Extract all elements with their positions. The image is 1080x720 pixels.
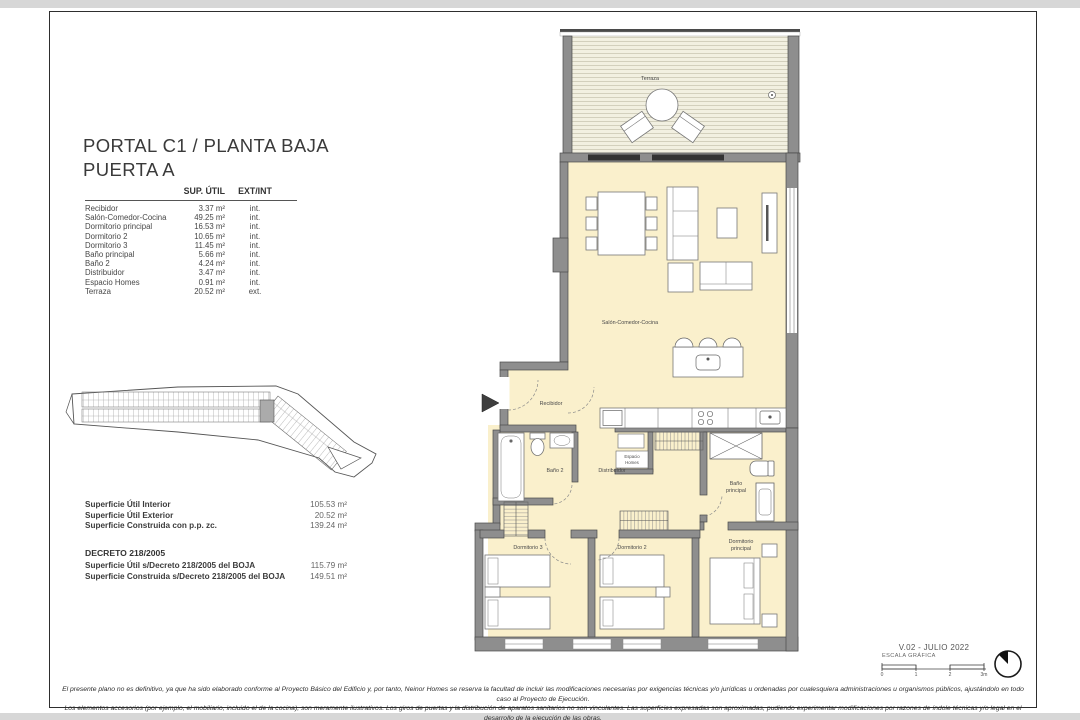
page-title: PORTAL C1 / PLANTA BAJA PUERTA A	[83, 134, 329, 182]
title-line-2: PUERTA A	[83, 158, 329, 182]
terrace-table	[646, 89, 678, 121]
nightstand	[656, 587, 670, 597]
label-banyo-ppal-2: principal	[726, 488, 746, 494]
site-units-row	[82, 409, 270, 422]
entry-arrow-icon	[482, 394, 499, 412]
label-recibidor: Recibidor	[540, 401, 563, 407]
table-row: Salón-Comedor-Cocina49.25 m²int.	[85, 213, 297, 222]
floor-plan: Terraza Salón-Comedor-Cocina Recibidor B…	[460, 25, 850, 675]
title-line-1: PORTAL C1 / PLANTA BAJA	[83, 134, 329, 158]
area-table-header: SUP. ÚTIL EXT/INT	[85, 186, 297, 201]
scale-tick-1: 1	[915, 672, 918, 677]
scale-tick-3: 3m	[981, 672, 988, 677]
summary-row: Superficie Útil Exterior20.52 m²	[85, 511, 347, 522]
highlighted-unit	[260, 400, 274, 422]
window-right	[787, 188, 797, 333]
decreto-heading: DECRETO 218/2005	[85, 548, 347, 559]
label-salon: Salón-Comedor-Cocina	[602, 320, 658, 326]
label-dorm3: Dormitorio 3	[513, 545, 542, 551]
label-espacio-1: Espacio	[624, 454, 640, 459]
label-terraza: Terraza	[641, 76, 659, 82]
version-scale-block: V.02 - JULIO 2022 ESCALA GRÁFICA 0 1 2 3…	[876, 643, 992, 682]
disclaimer-line-1: El presente plano no es definitivo, ya q…	[62, 685, 1024, 704]
table-row: Espacio Homes0.91 m²int.	[85, 278, 297, 287]
dining-table	[598, 192, 645, 255]
nightstand	[762, 544, 777, 557]
summary-row: Superficie Construida con p.p. zc.139.24…	[85, 521, 347, 532]
table-row: Baño 24.24 m²int.	[85, 259, 297, 268]
site-units-row	[82, 392, 270, 407]
label-dorm-ppal-2: principal	[731, 546, 751, 552]
armchair	[717, 208, 737, 238]
disclaimer-line-2: Los elementos accesorios (por ejemplo, e…	[62, 704, 1024, 720]
window-bottom	[505, 639, 758, 649]
table-row: Dormitorio principal16.53 m²int.	[85, 222, 297, 231]
terrace	[560, 29, 800, 153]
table-row: Dormitorio 210.65 m²int.	[85, 232, 297, 241]
entry-door-opening	[499, 377, 510, 409]
terrace-slider	[652, 155, 724, 161]
table-row: Recibidor3.37 m²int.	[85, 204, 297, 213]
label-dorm-ppal-1: Dormitorio	[729, 539, 754, 545]
tv	[766, 205, 769, 241]
nightstand	[762, 614, 777, 627]
table-row: Distribuidor3.47 m²int.	[85, 268, 297, 277]
col-header-ext-int: EXT/INT	[225, 186, 285, 196]
scale-tick-0: 0	[881, 672, 884, 677]
table-row: Dormitorio 311.45 m²int.	[85, 241, 297, 250]
decreto-row: Superficie Construida s/Decreto 218/2005…	[85, 572, 347, 583]
summary-row: Superficie Útil Interior105.53 m²	[85, 500, 347, 511]
sofa	[667, 187, 698, 260]
decreto-block: DECRETO 218/2005 Superficie Útil s/Decre…	[85, 548, 347, 582]
label-banyo-ppal-1: Baño	[730, 481, 743, 487]
label-banyo2: Baño 2	[546, 468, 563, 474]
label-distribuidor: Distribuidor	[598, 468, 625, 474]
surface-summary: Superficie Útil Interior105.53 m² Superf…	[85, 500, 347, 532]
north-arrow-icon	[992, 648, 1024, 680]
scale-bar: 0 1 2 3m	[878, 659, 990, 677]
decreto-row: Superficie Útil s/Decreto 218/2005 del B…	[85, 561, 347, 572]
nightstand	[485, 587, 500, 597]
terrace-slider	[588, 155, 640, 161]
coffee-table	[668, 263, 693, 292]
plan-sheet-page: PORTAL C1 / PLANTA BAJA PUERTA A SUP. ÚT…	[0, 0, 1080, 720]
col-header-room	[85, 186, 177, 196]
terrace-deck	[570, 33, 790, 153]
site-key-plan	[58, 360, 380, 488]
col-header-sup-util: SUP. ÚTIL	[177, 186, 225, 196]
version-label: V.02 - JULIO 2022	[876, 643, 992, 652]
label-espacio-2: Homes	[625, 460, 639, 465]
table-row: Terraza20.52 m²ext.	[85, 287, 297, 296]
page-top-margin	[0, 0, 1080, 8]
area-table: SUP. ÚTIL EXT/INT Recibidor3.37 m²int. S…	[85, 186, 297, 296]
legal-disclaimer: El presente plano no es definitivo, ya q…	[62, 685, 1024, 720]
scale-tick-2: 2	[949, 672, 952, 677]
label-dorm2: Dormitorio 2	[617, 545, 646, 551]
tv-unit	[762, 193, 777, 253]
table-row: Baño principal5.66 m²int.	[85, 250, 297, 259]
